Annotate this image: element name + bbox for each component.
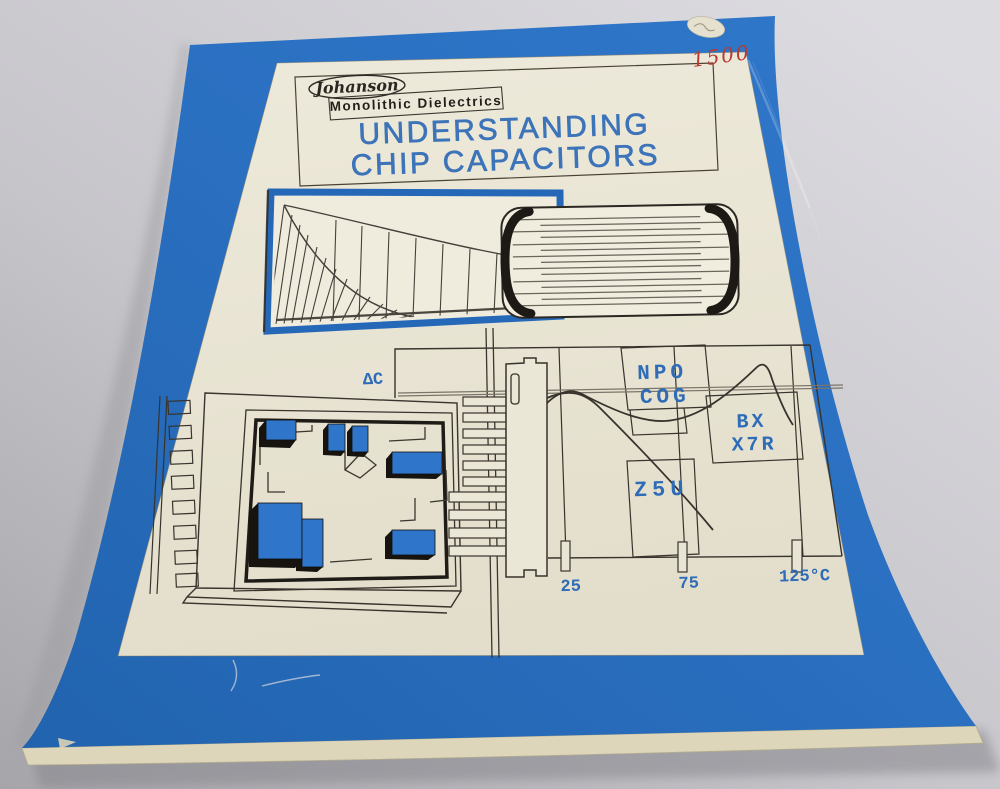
bx-label-line1: BX	[736, 411, 767, 435]
tick-label-125c: 125°C	[779, 567, 830, 587]
bx-label-line2: X7R	[731, 433, 777, 457]
chip-component	[302, 519, 323, 567]
photo-of-brochure: Johanson Monolithic Dielectrics UNDERSTA…	[0, 0, 1000, 789]
cover-title: UNDERSTANDING CHIP CAPACITORS	[349, 108, 660, 183]
tick-label-25: 25	[560, 578, 581, 598]
delta-c-label: ΔC	[362, 371, 383, 391]
z5u-label: Z5U	[634, 477, 689, 503]
npo-label-line2: COG	[640, 386, 690, 410]
tick-label-75: 75	[678, 575, 699, 595]
chip-capacitor-figure	[501, 204, 739, 318]
npo-label-line1: NPO	[637, 362, 687, 386]
chip-component	[352, 426, 368, 452]
chip-component	[392, 530, 435, 555]
chip-component	[392, 452, 442, 474]
chip-component	[266, 420, 296, 440]
chip-component	[258, 503, 302, 559]
ic-package	[506, 358, 547, 577]
chip-component	[328, 424, 345, 451]
